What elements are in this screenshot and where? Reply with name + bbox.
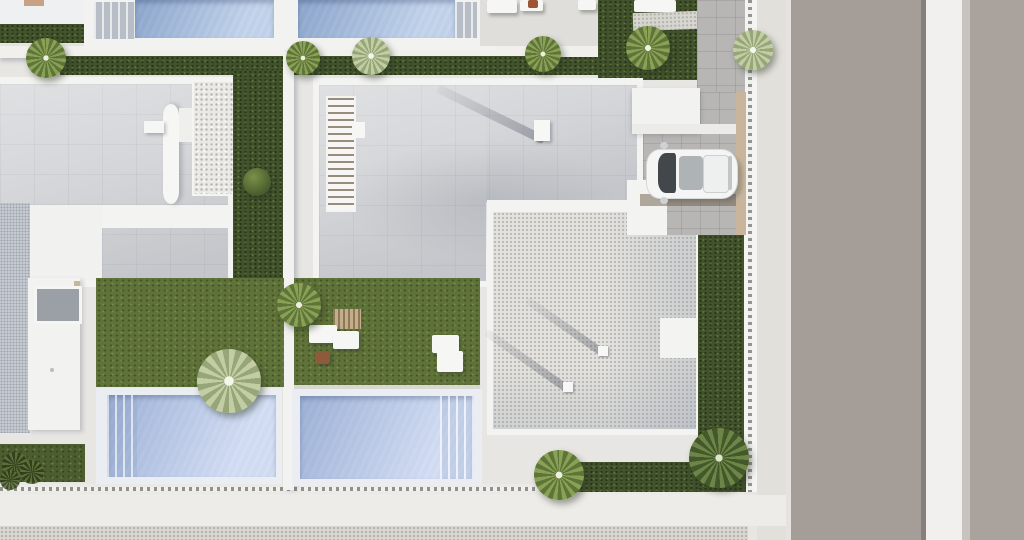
agave-plant-3: [0, 470, 20, 490]
roof-post-1: [598, 346, 608, 356]
palm-tree-top-3: [352, 37, 390, 75]
door-dot: [50, 368, 54, 372]
neighbor-tan-detail: [24, 0, 44, 6]
walkway-bottom: [0, 495, 786, 526]
car-sunroof: [679, 156, 703, 190]
car-windshield: [658, 153, 676, 193]
median-edge-band: [962, 0, 970, 540]
villa-left-stair-fin: [163, 104, 179, 204]
lounger-north-1: [487, 0, 517, 13]
gravel-bed-left-edge: [0, 203, 30, 433]
car-mirror-top: [660, 142, 668, 149]
pool-topright-water: [298, 0, 455, 38]
palm-tree-top-4: [525, 36, 561, 72]
lounger-north-3: [578, 0, 596, 10]
deck-mat: [333, 309, 361, 329]
sidewalk-right: [757, 0, 786, 540]
roof-post-2: [563, 382, 573, 392]
pool-villa-center-steps: [440, 396, 474, 479]
gravel-roof-notch: [660, 318, 702, 358]
scene-aerial-render: [0, 0, 1024, 540]
palm-tree-bottom-center: [534, 450, 584, 500]
pool-villa-left-steps: [107, 395, 137, 477]
parasol-red: [528, 0, 538, 8]
palm-tree-top-5: [626, 26, 670, 70]
lounger-north-4: [634, 0, 676, 12]
pool-topleft-deck-steps: [94, 2, 135, 39]
villa-left-stone-wall: [192, 80, 236, 196]
garden-seat-2: [437, 351, 463, 372]
driveway-white-strip: [632, 124, 738, 134]
palm-tree-pool-left: [197, 349, 261, 413]
hedge-row-top-center: [293, 56, 618, 75]
palm-tree-top-2: [286, 41, 320, 75]
agave-plant-2: [20, 460, 44, 484]
villa-left-upper-volume: [20, 205, 102, 281]
pool-topright-steps: [455, 2, 477, 38]
pool-topleft-water: [135, 0, 274, 38]
street-road-far-lane: [970, 0, 1024, 540]
car-roof-panel: [703, 155, 729, 193]
palm-tree-bottom-right: [689, 428, 749, 488]
roof-vent: [534, 120, 550, 141]
garden-stool: [315, 351, 330, 364]
palm-tree-top-6: [733, 30, 773, 70]
lounger-garden-2: [333, 331, 359, 349]
car-mirror-bottom: [660, 197, 668, 204]
villa-center-stairwell: [326, 96, 356, 212]
street-median-strip: [926, 0, 962, 540]
palm-tree-top-1: [26, 38, 66, 78]
gravel-strip-bottom: [0, 526, 748, 540]
neighbor-roof-topleft: [0, 0, 92, 26]
car-rear-glass: [728, 156, 732, 190]
stairwell-landing: [352, 122, 365, 138]
road-curb-line: [786, 0, 791, 540]
palm-tree-garden-boundary: [277, 283, 321, 327]
skylight-villa-left: [34, 286, 82, 324]
villa-left-chimney: [144, 121, 164, 133]
bush-hedge-left: [243, 168, 271, 196]
fence-right-mesh: [748, 0, 752, 492]
